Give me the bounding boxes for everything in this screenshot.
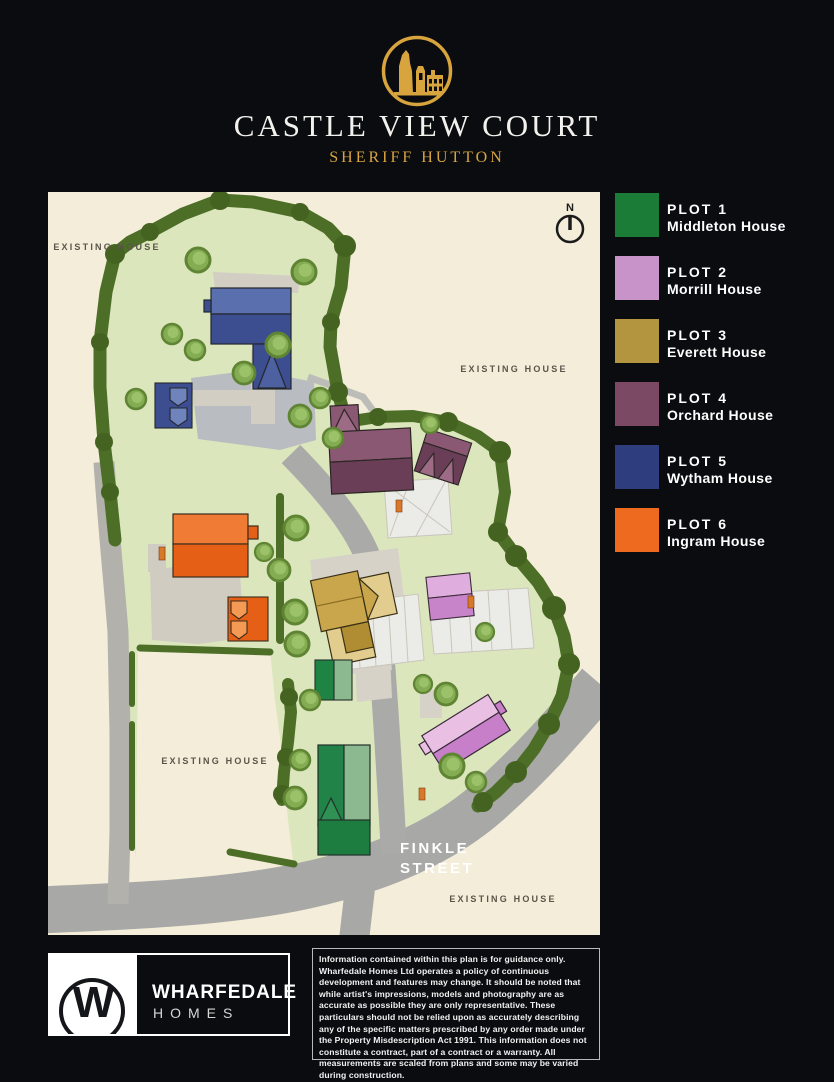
legend-item-plot-1: PLOT 1 Middleton House	[615, 193, 825, 237]
legend-item-plot-4: PLOT 4 Orchard House	[615, 382, 825, 426]
plot-2-garage	[426, 573, 474, 620]
label-existing-house-se: EXISTING HOUSE	[449, 894, 556, 904]
label-existing-house-ne: EXISTING HOUSE	[460, 364, 567, 374]
plot-3-house-name: Everett House	[667, 344, 766, 360]
plot-2-color-swatch	[615, 256, 659, 300]
label-existing-house-nw: EXISTING HOUSE	[53, 242, 160, 252]
brand-name: WHARFEDALE	[152, 982, 297, 1004]
north-label: N	[566, 202, 574, 214]
plot-1-garage	[315, 660, 352, 700]
plot-5-label: PLOT 5	[667, 453, 773, 469]
wharfedale-logo-mark: W	[50, 955, 137, 1034]
castle-logo-icon	[375, 33, 459, 109]
label-finkle: FINKLE	[400, 840, 469, 857]
plot-4-label: PLOT 4	[667, 390, 773, 406]
plot-1-house-name: Middleton House	[667, 218, 786, 234]
page-title: CASTLE VIEW COURT	[0, 108, 834, 144]
road-south-stub	[354, 888, 360, 935]
plot-6-house-name: Ingram House	[667, 533, 765, 549]
label-existing-house-sw: EXISTING HOUSE	[161, 756, 268, 766]
plot-1-color-swatch	[615, 193, 659, 237]
plot-2-house-name: Morrill House	[667, 281, 762, 297]
plot-6-label: PLOT 6	[667, 516, 765, 532]
legend-item-plot-6: PLOT 6 Ingram House	[615, 508, 825, 552]
plot-5-color-swatch	[615, 445, 659, 489]
legend-item-plot-2: PLOT 2 Morrill House	[615, 256, 825, 300]
plot-5-house-name: Wytham House	[667, 470, 773, 486]
brochure-page: { "header": { "title": "CASTLE VIEW COUR…	[0, 0, 834, 1080]
brand-subname: HOMES	[153, 1005, 239, 1021]
plot-4-color-swatch	[615, 382, 659, 426]
plot-2-label: PLOT 2	[667, 264, 762, 280]
logo-letter: W	[50, 981, 137, 1025]
plot-1-label: PLOT 1	[667, 201, 786, 217]
plot-legend: PLOT 1 Middleton House PLOT 2 Morrill Ho…	[615, 193, 825, 571]
plot-5-garage	[155, 383, 192, 428]
plot-3-label: PLOT 3	[667, 327, 766, 343]
plot-3-color-swatch	[615, 319, 659, 363]
disclaimer-text: Information contained within this plan i…	[312, 948, 600, 1060]
plot-4-house-name: Orchard House	[667, 407, 773, 423]
legend-item-plot-3: PLOT 3 Everett House	[615, 319, 825, 363]
plot-6-ingram-house	[173, 514, 258, 577]
site-plan: EXISTING HOUSE EXISTING HOUSE EXISTING H…	[48, 192, 600, 935]
plot-6-garage	[228, 597, 268, 641]
label-street: STREET	[400, 860, 474, 877]
plot-6-color-swatch	[615, 508, 659, 552]
page-subtitle: SHERIFF HUTTON	[0, 149, 834, 167]
legend-item-plot-5: PLOT 5 Wytham House	[615, 445, 825, 489]
plot-1-middleton-house	[318, 745, 370, 855]
wharfedale-logo: W WHARFEDALE HOMES	[48, 953, 290, 1036]
